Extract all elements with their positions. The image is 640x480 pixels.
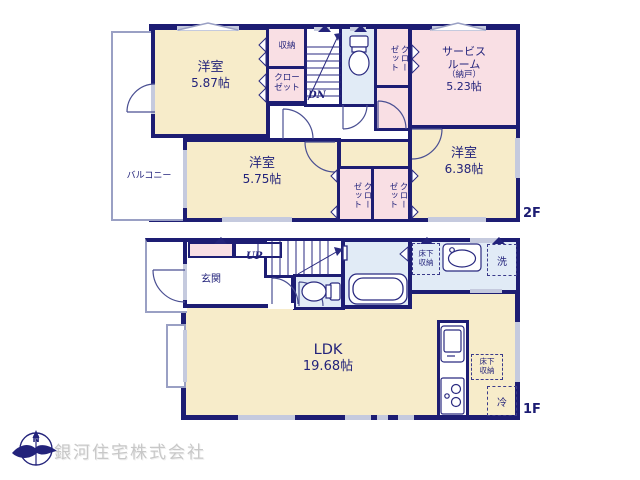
company-watermark: 銀河住宅株式会社 (54, 438, 206, 463)
compass-icon: N (12, 430, 57, 465)
underfloor-storage-washroom: 床下 収納 (412, 243, 440, 275)
washer-label: 洗 (497, 253, 507, 268)
floor-plan: 床下 収納 洗 床下 収納 冷 (0, 0, 640, 480)
vent-bar (350, 27, 366, 31)
closet-a-label: クロー ゼット (341, 171, 372, 219)
window (398, 415, 414, 420)
porch (145, 238, 187, 313)
service-room-label: サービス ルーム （納戸） 5.23帖 (408, 46, 520, 94)
bedroom-638-label: 洋室 6.38帖 (408, 146, 520, 176)
floor2-label: 2F (523, 206, 541, 221)
service-room-vestibule (374, 85, 412, 131)
floor1-label: 1F (523, 402, 541, 417)
doorway-gap (268, 303, 294, 309)
window (515, 322, 520, 382)
bedroom-587-label: 洋室 5.87帖 (151, 60, 270, 90)
entrance-label: 玄関 (183, 274, 239, 286)
window (345, 415, 371, 420)
balcony-label: バルコニー (110, 171, 188, 182)
fridge-label: 冷 (497, 394, 507, 409)
stairs-up-label: UP (246, 251, 262, 263)
bathroom (341, 238, 412, 309)
compass-north-label: N (32, 435, 39, 445)
closet-hall-label: クロー ゼット (266, 73, 308, 93)
washer-space: 洗 (487, 244, 517, 276)
window (222, 217, 292, 222)
stairs-down-label: DN (308, 90, 326, 102)
balcony (111, 31, 153, 221)
sliding-door (470, 289, 502, 293)
vent-bar (314, 27, 330, 31)
window (238, 415, 295, 420)
toilet-2f (339, 26, 378, 107)
storage-2f-label: 収納 (266, 41, 308, 51)
closet-service-label: クロー ゼット (377, 32, 409, 84)
window (377, 415, 388, 420)
closet-b-label: クロー ゼット (376, 171, 408, 219)
shoe-cabinet (188, 242, 234, 258)
window (428, 217, 486, 222)
window (432, 26, 486, 31)
window (177, 26, 239, 31)
underfloor-storage-kitchen: 床下 収納 (471, 354, 503, 380)
window (470, 238, 500, 243)
bedroom-575-label: 洋室 5.75帖 (183, 156, 341, 186)
toilet-1f (293, 274, 345, 310)
fridge-space: 冷 (487, 386, 517, 416)
ldk-label: LDK 19.68帖 (183, 342, 473, 375)
